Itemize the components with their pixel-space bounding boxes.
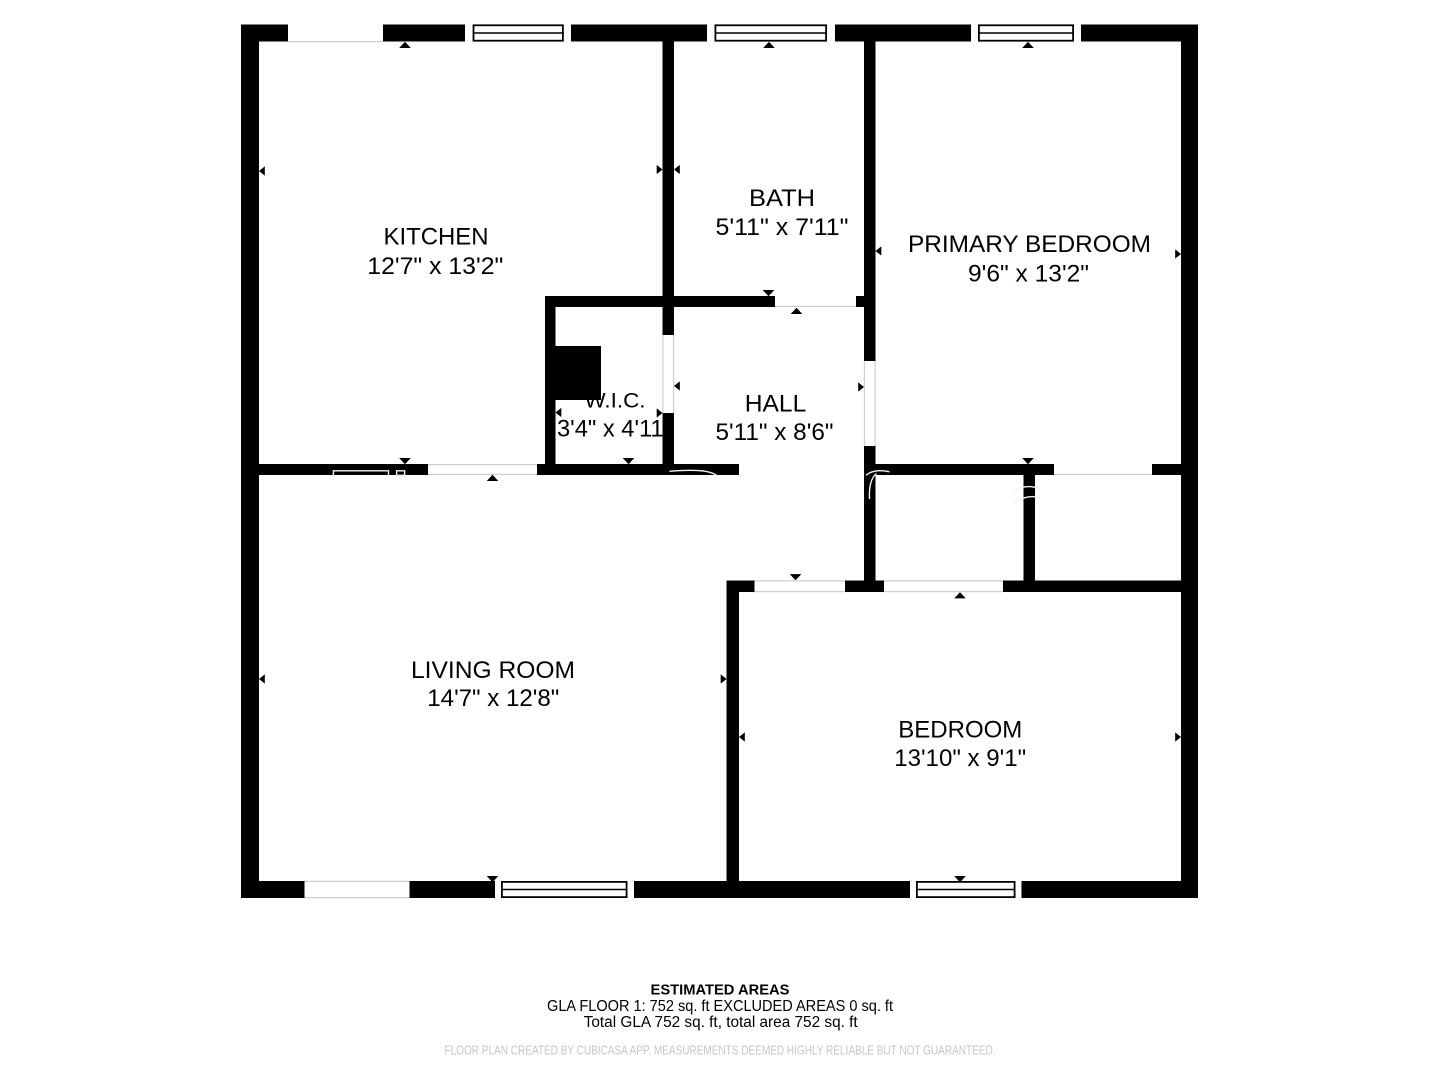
svg-text:BEDROOM: BEDROOM xyxy=(898,717,1022,744)
svg-text:13'10" x 9'1": 13'10" x 9'1" xyxy=(894,745,1026,772)
svg-text:HALL: HALL xyxy=(745,391,807,418)
svg-text:W.I.C.: W.I.C. xyxy=(585,390,646,413)
svg-text:ESTIMATED AREAS: ESTIMATED AREAS xyxy=(651,982,790,999)
svg-text:LIVING ROOM: LIVING ROOM xyxy=(411,657,575,684)
svg-text:5'11" x 8'6": 5'11" x 8'6" xyxy=(716,419,834,446)
svg-text:14'7" x 12'8": 14'7" x 12'8" xyxy=(427,685,559,712)
svg-text:5'11" x 7'11": 5'11" x 7'11" xyxy=(716,214,849,241)
svg-text:BATH: BATH xyxy=(749,185,815,212)
svg-text:9'6" x 13'2": 9'6" x 13'2" xyxy=(968,261,1089,288)
svg-text:12'7" x 13'2": 12'7" x 13'2" xyxy=(367,253,503,280)
svg-text:FLOOR PLAN CREATED BY CUBICASA: FLOOR PLAN CREATED BY CUBICASA APP. MEAS… xyxy=(445,1044,996,1058)
svg-text:3'4" x 4'11": 3'4" x 4'11" xyxy=(557,416,672,443)
svg-text:Total GLA 752 sq. ft, total ar: Total GLA 752 sq. ft, total area 752 sq.… xyxy=(584,1014,859,1031)
svg-text:PRIMARY BEDROOM: PRIMARY BEDROOM xyxy=(908,231,1151,258)
svg-text:KITCHEN: KITCHEN xyxy=(384,224,489,251)
svg-text:GLA FLOOR 1: 752 sq. ft EXCLUD: GLA FLOOR 1: 752 sq. ft EXCLUDED AREAS 0… xyxy=(547,998,894,1015)
